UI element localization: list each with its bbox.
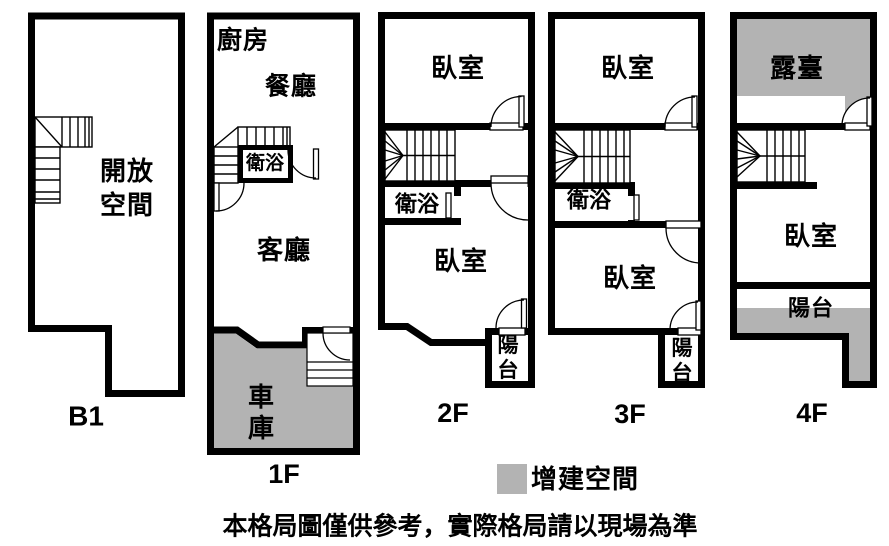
f4-floor-label: 4F	[796, 397, 828, 431]
f4-terrace-label: 露臺	[770, 52, 824, 85]
f4-stairs-icon	[737, 130, 805, 182]
f1-kitchen-label: 廚房	[217, 25, 269, 56]
f2-balcony-label: 陽台	[497, 333, 519, 383]
f1-living-label: 客廳	[257, 234, 311, 267]
legend-expansion-swatch	[497, 464, 527, 494]
f3-bedroom-top-label: 臥室	[601, 52, 655, 85]
legend-expansion-label: 增建空間	[531, 463, 639, 496]
f4-balcony-label: 陽台	[788, 294, 834, 322]
f3-bedroom-bottom-label: 臥室	[603, 262, 657, 295]
f1-garage-door-threshold	[323, 327, 350, 333]
disclaimer-text: 本格局圖僅供參考，實際格局請以現場為準	[222, 511, 697, 542]
f2-floor-label: 2F	[437, 397, 469, 431]
f1-floor-label: 1F	[268, 458, 300, 492]
f3-floor-label: 3F	[614, 398, 646, 432]
b1-open-space-label: 開放空間	[98, 155, 155, 223]
f2-stairs-icon	[385, 130, 455, 181]
f3-balcony-label: 陽台	[671, 336, 693, 386]
floor-plan-page: 開放空間 B1 廚房 餐廳 衛浴 客廳 車庫 1F 臥室 衛浴 臥室 陽台 2F…	[0, 0, 889, 546]
f1-dining-label: 餐廳	[265, 71, 317, 102]
f2-bathroom-label: 衛浴	[395, 190, 439, 218]
b1-stairs-icon	[35, 117, 92, 203]
f3-bathroom-label: 衛浴	[567, 186, 611, 214]
f3-stairs-icon	[555, 130, 630, 183]
f2-doors	[446, 96, 528, 335]
b1-floor-label: B1	[68, 399, 104, 434]
f1-garage-label: 車庫	[247, 382, 274, 444]
f3-doors	[634, 96, 701, 335]
f2-bedroom-bottom-label: 臥室	[434, 245, 488, 278]
f2-bedroom-top-label: 臥室	[431, 52, 485, 85]
f4-bedroom-label: 臥室	[784, 220, 838, 253]
f1-bathroom-label: 衛浴	[246, 152, 284, 176]
